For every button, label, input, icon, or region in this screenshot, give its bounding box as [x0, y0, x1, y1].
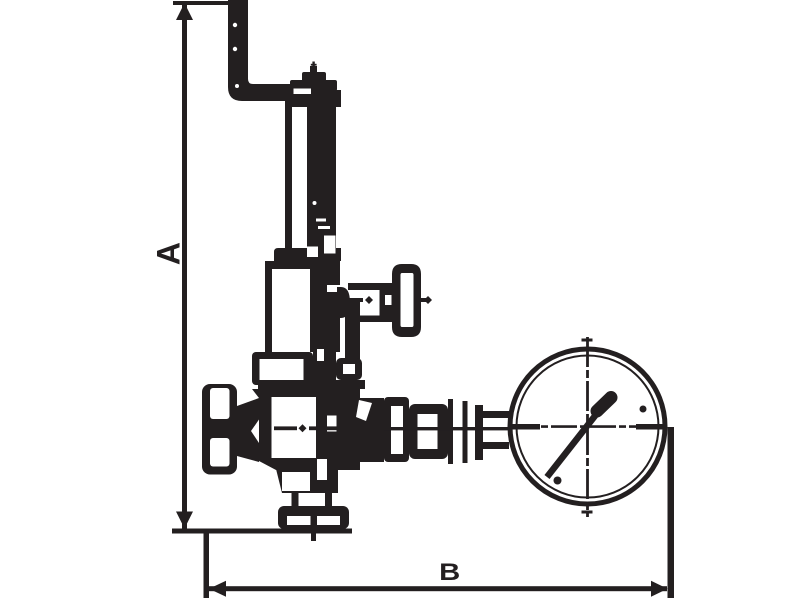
svg-text:A: A	[150, 242, 186, 265]
svg-text:B: B	[439, 558, 460, 585]
